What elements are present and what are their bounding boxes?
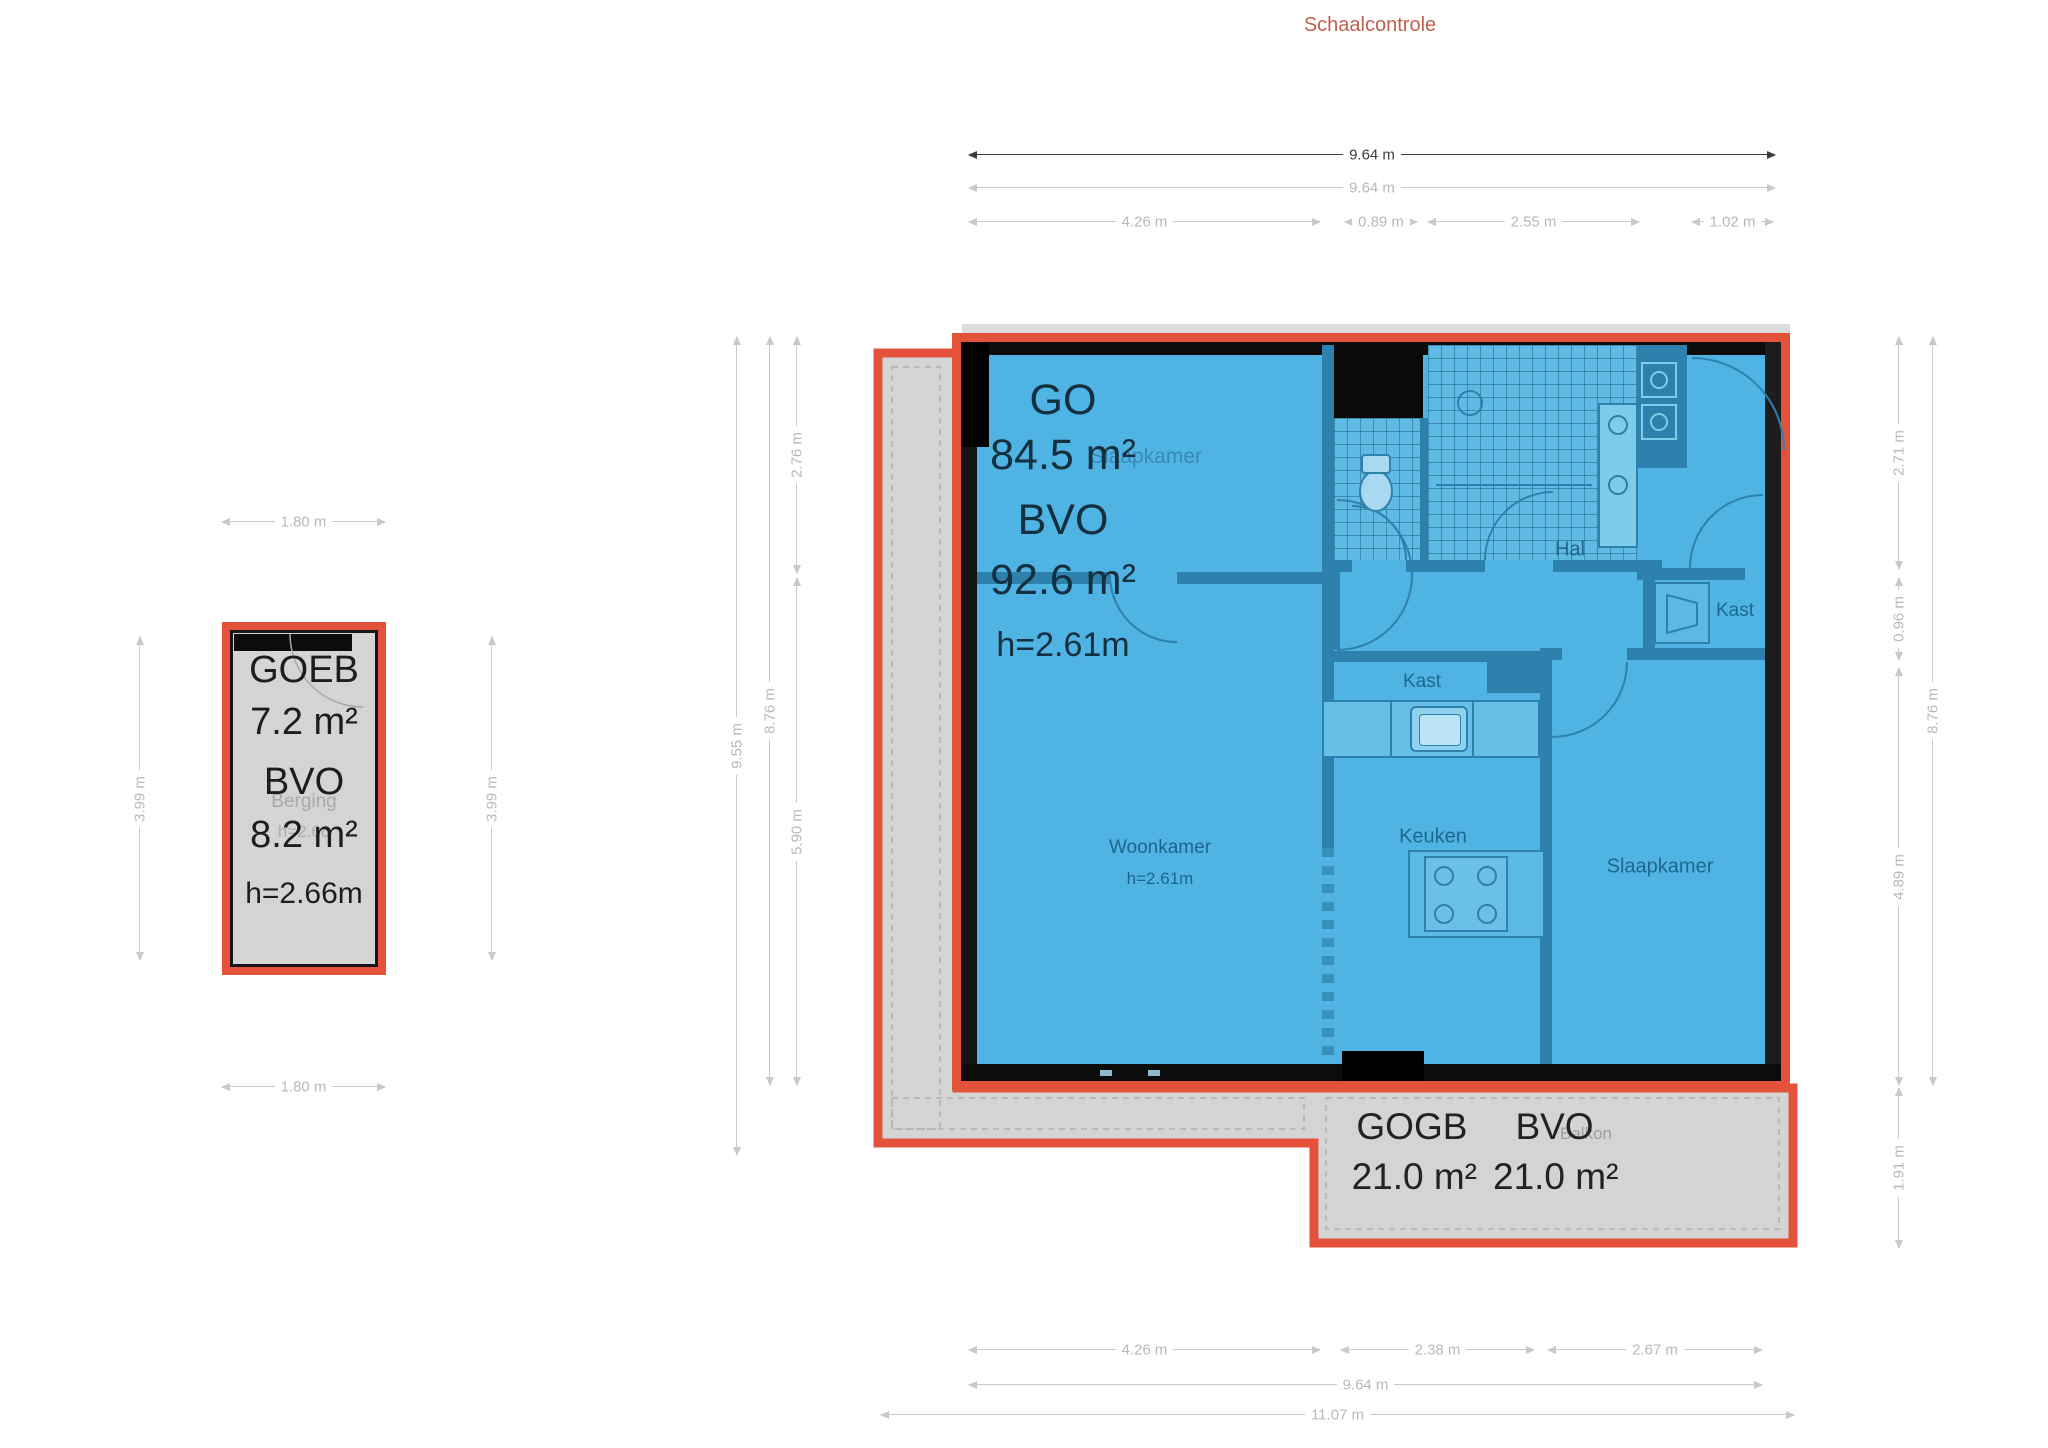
- kitchen-sink-icon: [1410, 706, 1468, 752]
- small-building-height: h=2.66m: [222, 878, 386, 910]
- wall-wc-bath: [1420, 418, 1428, 560]
- bvo-area: 92.6 m²: [933, 558, 1193, 603]
- balcony-code: GOGB: [1356, 1106, 1467, 1148]
- appliance-column: [1637, 345, 1687, 468]
- room-label-closet-right: Kast: [1716, 600, 1754, 622]
- main-building: Slaapkamer GO 84.5 m² BVO 92.6 m² h=2.61…: [952, 333, 1790, 1090]
- room-label-living: Woonkamer: [1109, 837, 1211, 859]
- go-label: GO: [933, 378, 1193, 423]
- wall-right: [1765, 342, 1781, 1081]
- room-label-bedroom-bottom: Slaapkamer: [1607, 856, 1714, 879]
- room-label-living-height: h=2.61m: [1127, 869, 1194, 889]
- bvo-label: BVO: [933, 498, 1193, 543]
- small-building-bvo-area: 8.2 m²: [222, 816, 386, 856]
- balcony-values-line: 21.0 m² 21.0 m²: [1300, 1156, 1670, 1198]
- wall-wc-left: [1322, 345, 1334, 572]
- balcony-bvo-label: BVO: [1515, 1106, 1593, 1148]
- wall-closet-right-left: [1643, 580, 1655, 648]
- wc-floor: [1334, 418, 1420, 560]
- small-building: Berging h=2.66 GOEB 7.2 m² BVO 8.2 m² h=…: [222, 622, 386, 975]
- balcony-door-block: [1342, 1051, 1424, 1081]
- door-gap-bath: [1485, 560, 1553, 572]
- entrance-door-block: [1334, 345, 1423, 418]
- kitchen-counter-divider-2: [1472, 702, 1474, 756]
- balcony-title-line: GOGB BVO: [1310, 1106, 1640, 1148]
- wall-bedroom-living-b: [1177, 572, 1334, 584]
- door-gap-wc: [1352, 560, 1406, 572]
- door-gap-bedroom: [1562, 648, 1627, 660]
- small-building-code: GOEB: [222, 651, 386, 691]
- shaft-block: [1487, 659, 1540, 693]
- window-tick-1: [1100, 1070, 1112, 1076]
- floorplan-canvas: Schaalcontrole 9.64 m 9.64 m 4.26 m 0.89…: [0, 0, 2048, 1448]
- balcony-bvo-area: 21.0 m²: [1493, 1156, 1618, 1198]
- room-label-hall: Hal: [1555, 539, 1585, 562]
- window-tick-2: [1148, 1070, 1160, 1076]
- wall-closet-right-top: [1637, 568, 1745, 580]
- building-height: h=2.61m: [933, 628, 1193, 664]
- balcony-area: 21.0 m²: [1352, 1156, 1477, 1198]
- room-label-closet-center: Kast: [1403, 671, 1441, 693]
- kitchen-counter-divider-1: [1390, 702, 1392, 756]
- small-building-area: 7.2 m²: [222, 703, 386, 743]
- bath-counter: [1598, 403, 1638, 548]
- sink-basin: [1419, 714, 1461, 746]
- room-label-kitchen: Keuken: [1399, 826, 1467, 849]
- wall-living-kitchen-open: [1322, 848, 1334, 1064]
- go-area: 84.5 m²: [933, 433, 1193, 478]
- stove-island: [1408, 850, 1545, 938]
- small-building-bvo-label: BVO: [222, 763, 386, 803]
